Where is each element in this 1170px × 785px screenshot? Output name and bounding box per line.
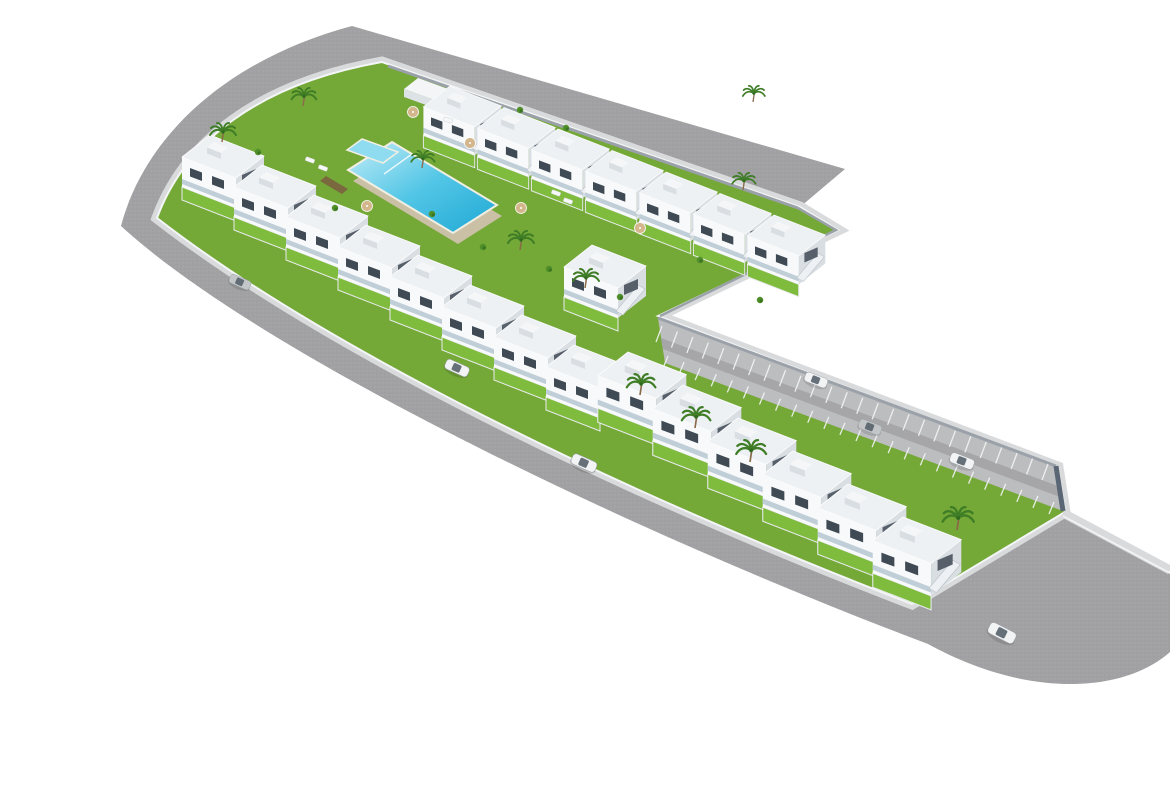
bush-7 [517,107,523,113]
parasol-5 [635,223,646,234]
bush-2 [332,205,338,211]
bush-1 [255,149,261,155]
parasol-4 [516,203,527,214]
site-plan-svg [0,0,1170,785]
parasol-2 [465,138,476,149]
palm-tree-7 [743,86,765,102]
bush-9 [697,257,703,263]
bush-10 [757,297,763,303]
parasol-3 [362,201,373,212]
bush-8 [563,125,569,131]
bush-5 [546,266,552,272]
ground-layer [121,26,1170,684]
render-canvas [0,0,1170,785]
parasol-1 [408,107,419,118]
bush-3 [429,211,435,217]
bush-6 [617,294,623,300]
bush-4 [480,244,486,250]
